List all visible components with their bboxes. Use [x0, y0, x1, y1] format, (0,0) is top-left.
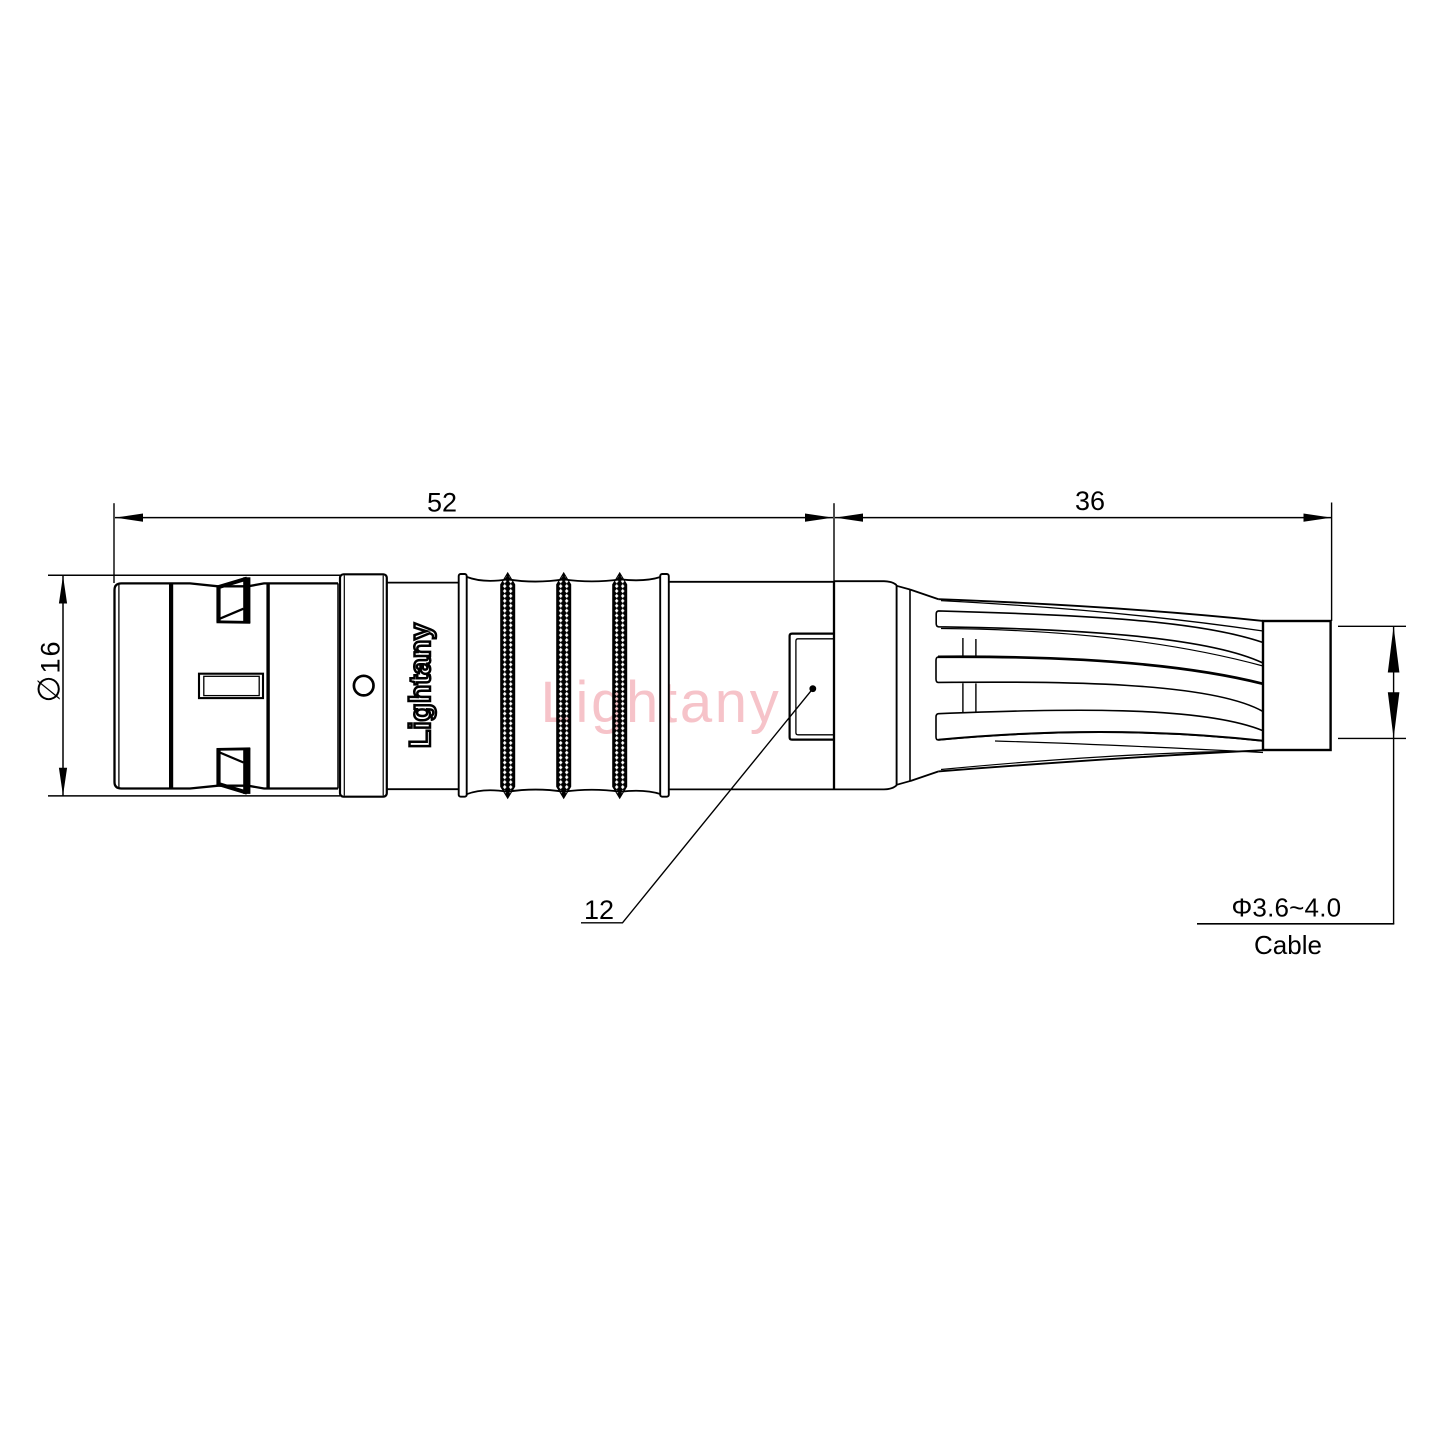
svg-text:Cable: Cable	[1254, 930, 1322, 960]
svg-text:36: 36	[1075, 486, 1105, 516]
svg-text:Lightany: Lightany	[404, 623, 437, 748]
svg-text:12: 12	[584, 895, 614, 925]
svg-text:∅16: ∅16	[32, 639, 67, 702]
svg-text:Φ3.6~4.0: Φ3.6~4.0	[1231, 893, 1341, 923]
svg-text:52: 52	[427, 488, 457, 518]
